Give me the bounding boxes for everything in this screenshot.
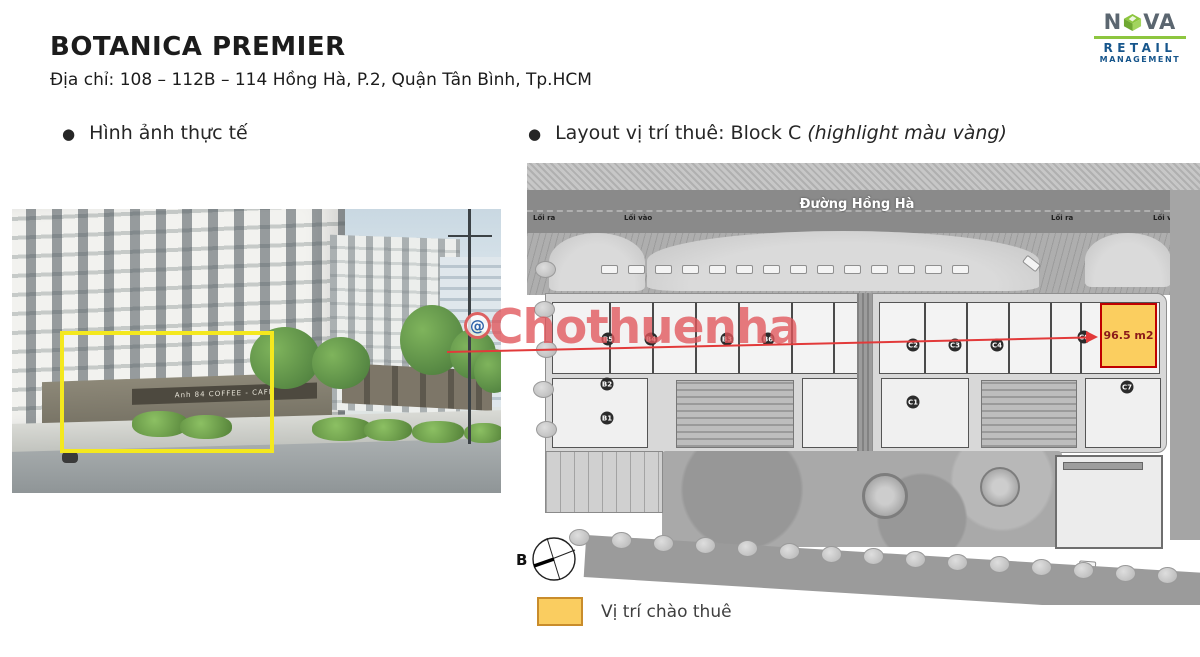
unit-badge-b1: B1 bbox=[601, 412, 614, 425]
parked-car bbox=[601, 265, 618, 274]
parked-car bbox=[952, 265, 969, 274]
service-rooms bbox=[545, 451, 663, 513]
tree-mound bbox=[1085, 233, 1171, 287]
legend: Vị trí chào thuê bbox=[537, 597, 732, 626]
road-access-label: Lối ra bbox=[1051, 214, 1073, 222]
address-line: Địa chỉ: 108 – 112B – 114 Hồng Hà, P.2, … bbox=[50, 70, 592, 90]
logo-text-n: N bbox=[1104, 10, 1123, 34]
annex-building-c8 bbox=[1055, 455, 1163, 549]
unit-badge-c7: C7 bbox=[1121, 381, 1134, 394]
tree-blob bbox=[737, 540, 758, 557]
parked-car bbox=[628, 265, 645, 274]
unit-badge-c1: C1 bbox=[907, 396, 920, 409]
tree-blob bbox=[989, 556, 1010, 573]
logo-text-va: VA bbox=[1143, 10, 1176, 34]
parked-car bbox=[844, 265, 861, 274]
bullet-dot: ● bbox=[62, 125, 75, 143]
slide: BOTANICA PREMIER Địa chỉ: 108 – 112B – 1… bbox=[0, 0, 1200, 657]
garden-courtyard bbox=[662, 451, 1062, 547]
parked-car bbox=[871, 265, 888, 274]
parked-car bbox=[898, 265, 915, 274]
unit-badge-b2: B2 bbox=[601, 378, 614, 391]
tree-blob bbox=[1115, 565, 1136, 582]
highlight-area-label: 96.5 m2 bbox=[1103, 329, 1153, 342]
legend-label: Vị trí chào thuê bbox=[601, 602, 732, 622]
tree-blob bbox=[779, 543, 800, 560]
compass-icon bbox=[530, 535, 578, 583]
tree-blob bbox=[1157, 567, 1178, 584]
red-arrow-head bbox=[1086, 331, 1098, 343]
road-access-label: Lối ra bbox=[533, 214, 555, 222]
floor-plan: Đường Hồng Hà Lối raLối vàoLối raLối vào bbox=[527, 163, 1200, 605]
watermark-icon: @ bbox=[464, 312, 491, 339]
street-photo: Anh 84 COFFEE - CAFE bbox=[12, 209, 501, 493]
tree-blob bbox=[653, 535, 674, 552]
tree-blob bbox=[863, 548, 884, 565]
bush bbox=[412, 421, 464, 443]
bush bbox=[364, 419, 412, 441]
parked-car bbox=[736, 265, 753, 274]
plan-opposite-block bbox=[527, 163, 1200, 190]
tree-blob bbox=[611, 532, 632, 549]
parked-car bbox=[790, 265, 807, 274]
plan-street: Đường Hồng Hà Lối raLối vàoLối raLối vào bbox=[527, 190, 1200, 233]
parked-car bbox=[925, 265, 942, 274]
tree-blob bbox=[536, 421, 557, 438]
tree-blob bbox=[533, 381, 554, 398]
road-access-label: Lối vào bbox=[624, 214, 652, 222]
nova-retail-logo: N VA RETAIL MANAGEMENT bbox=[1094, 10, 1186, 64]
parked-car bbox=[763, 265, 780, 274]
bush bbox=[312, 417, 372, 441]
watermark-text: Chothuenha bbox=[489, 300, 799, 355]
tree-blob bbox=[1031, 559, 1052, 576]
parked-car bbox=[655, 265, 672, 274]
logo-green-rule bbox=[1094, 36, 1186, 39]
tree-blob bbox=[821, 546, 842, 563]
bullet-dot: ● bbox=[528, 125, 541, 143]
tree-blob bbox=[1073, 562, 1094, 579]
street-name-label: Đường Hồng Hà bbox=[777, 197, 937, 212]
nova-cube-icon bbox=[1123, 13, 1142, 32]
plan-side-road bbox=[1170, 190, 1200, 540]
tree-blob bbox=[905, 551, 926, 568]
page-title: BOTANICA PREMIER bbox=[50, 32, 346, 62]
compass-north-label: B bbox=[516, 551, 527, 569]
tree-blob bbox=[695, 537, 716, 554]
tree-mound bbox=[549, 233, 645, 291]
legend-yellow-swatch bbox=[537, 597, 583, 626]
parked-car bbox=[709, 265, 726, 274]
tree bbox=[312, 337, 370, 389]
tree-mound bbox=[647, 231, 1039, 291]
logo-retail-label: RETAIL bbox=[1094, 41, 1186, 55]
highlighted-unit-96-5m2: 96.5 m2 bbox=[1100, 303, 1157, 368]
motorbike bbox=[62, 452, 78, 463]
parked-car bbox=[682, 265, 699, 274]
tree-blob bbox=[535, 261, 556, 278]
tree-blob bbox=[947, 554, 968, 571]
photo-section-heading: ●Hình ảnh thực tế bbox=[62, 122, 248, 144]
parked-car bbox=[817, 265, 834, 274]
logo-management-label: MANAGEMENT bbox=[1094, 55, 1186, 64]
layout-section-heading: ●Layout vị trí thuê: Block C (highlight … bbox=[528, 122, 1007, 144]
utility-pole-arm bbox=[448, 235, 492, 237]
photo-highlight-rectangle bbox=[60, 331, 274, 453]
